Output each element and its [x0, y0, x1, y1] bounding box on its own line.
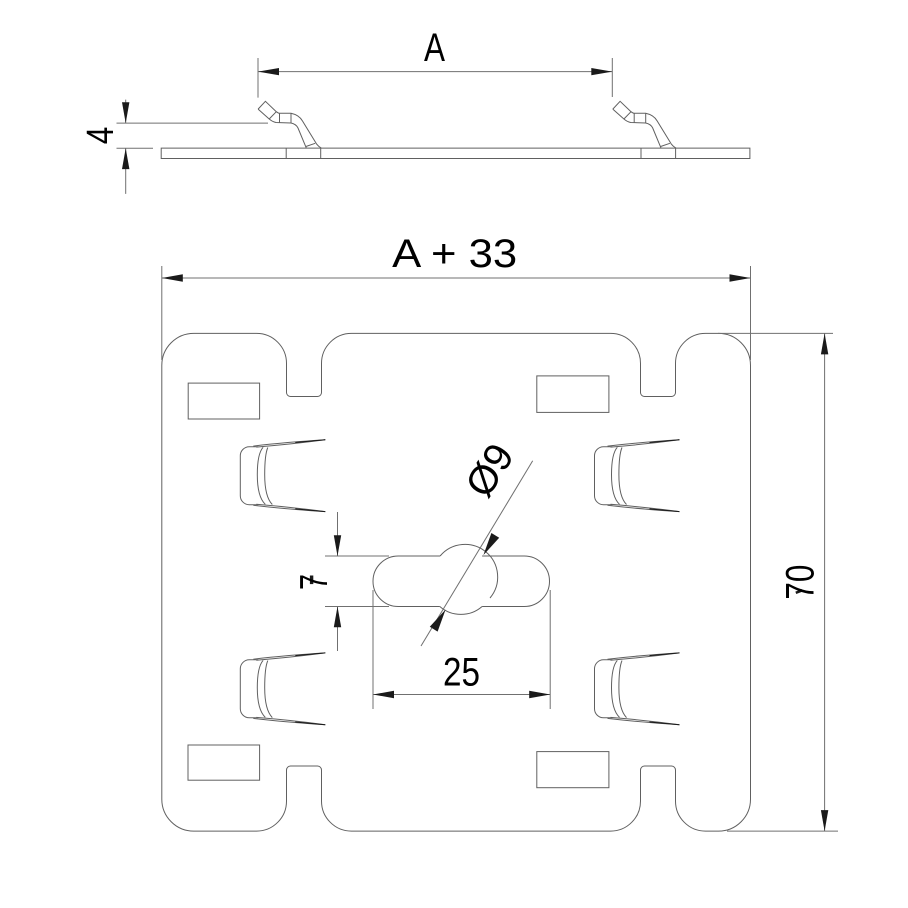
svg-text:7: 7 [293, 574, 336, 590]
svg-text:70: 70 [779, 565, 823, 600]
svg-text:Ø9: Ø9 [457, 436, 523, 505]
svg-text:A: A [424, 26, 445, 70]
svg-text:25: 25 [443, 651, 480, 695]
svg-text:A + 33: A + 33 [392, 232, 517, 276]
svg-text:4: 4 [80, 127, 122, 145]
